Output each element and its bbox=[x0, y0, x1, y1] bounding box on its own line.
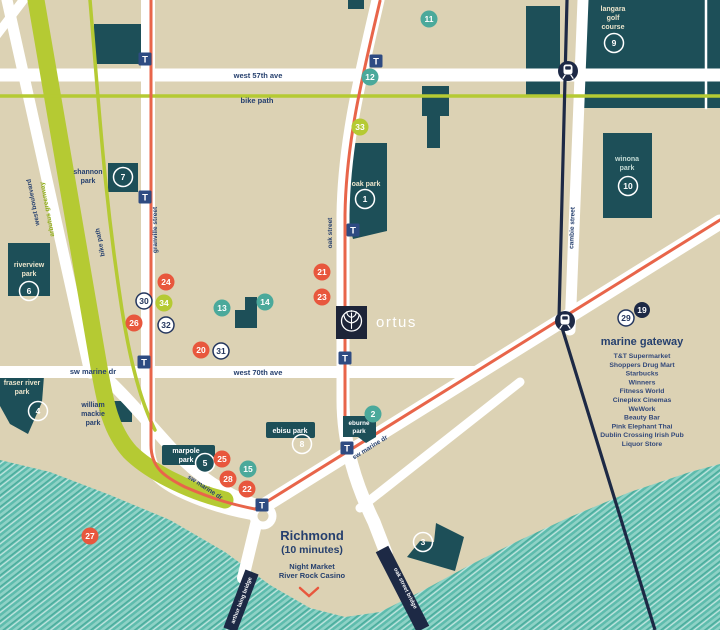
svg-text:33: 33 bbox=[355, 122, 365, 132]
map-marker-34[interactable]: 34 bbox=[156, 295, 173, 312]
label-granville: granville street bbox=[152, 206, 159, 253]
svg-text:12: 12 bbox=[365, 72, 375, 82]
svg-text:11: 11 bbox=[425, 14, 434, 24]
map-marker-24[interactable]: 24 bbox=[158, 274, 175, 291]
map-marker-25[interactable]: 25 bbox=[214, 451, 231, 468]
map-marker-30[interactable]: 30 bbox=[136, 293, 152, 309]
marine-gateway-item: Cineplex Cinemas bbox=[613, 397, 672, 404]
map-marker-26[interactable]: 26 bbox=[126, 315, 143, 332]
marine-gateway-item: Liquor Store bbox=[622, 441, 663, 448]
map-marker-5[interactable]: 5 bbox=[196, 454, 215, 473]
t-station-icon[interactable]: T bbox=[139, 191, 152, 204]
svg-text:10: 10 bbox=[623, 181, 633, 191]
svg-text:8: 8 bbox=[300, 439, 305, 449]
marine-gateway-item: Beauty Bar bbox=[624, 415, 660, 422]
marine-gateway-item: Pink Elephant Thai bbox=[612, 423, 673, 430]
label-west-57th: west 57th ave bbox=[233, 71, 283, 80]
svg-text:28: 28 bbox=[223, 474, 233, 484]
map-marker-14[interactable]: 14 bbox=[257, 294, 274, 311]
label-oak-street: oak street bbox=[327, 217, 334, 249]
richmond-line1: Night Market bbox=[289, 562, 335, 571]
map-marker-21[interactable]: 21 bbox=[314, 264, 331, 281]
label-bike-path: bike path bbox=[241, 96, 274, 105]
svg-text:19: 19 bbox=[637, 305, 647, 315]
train-station-icon[interactable] bbox=[555, 311, 575, 331]
richmond-line2: River Rock Casino bbox=[279, 571, 346, 580]
svg-text:T: T bbox=[259, 500, 265, 511]
map-marker-12[interactable]: 12 bbox=[362, 69, 379, 86]
t-station-icon[interactable]: T bbox=[347, 224, 360, 237]
svg-text:T: T bbox=[373, 56, 379, 67]
label-west-70th: west 70th ave bbox=[233, 368, 283, 377]
svg-text:2: 2 bbox=[371, 409, 376, 419]
richmond-title: Richmond bbox=[280, 528, 344, 543]
map-canvas: arthur laing bridge oak street bridge we… bbox=[0, 0, 720, 630]
svg-text:T: T bbox=[344, 443, 350, 454]
svg-text:13: 13 bbox=[217, 303, 227, 313]
svg-text:26: 26 bbox=[129, 318, 139, 328]
roundabout-island bbox=[258, 511, 269, 522]
marine-gateway-item: Winners bbox=[629, 379, 656, 386]
map-marker-32[interactable]: 32 bbox=[158, 317, 174, 333]
langara-golf-course-area bbox=[579, 0, 720, 108]
svg-text:1: 1 bbox=[363, 194, 368, 204]
building-block-oak-top bbox=[348, 0, 364, 9]
svg-text:27: 27 bbox=[85, 531, 95, 541]
svg-text:14: 14 bbox=[260, 297, 270, 307]
ortus-logo-text: ortus bbox=[376, 314, 417, 331]
map-marker-13[interactable]: 13 bbox=[214, 300, 231, 317]
svg-text:7: 7 bbox=[121, 172, 126, 182]
svg-text:5: 5 bbox=[203, 458, 208, 468]
svg-text:32: 32 bbox=[161, 320, 171, 330]
marine-gateway-title: marine gateway bbox=[601, 336, 684, 348]
map-marker-28[interactable]: 28 bbox=[220, 471, 237, 488]
svg-text:6: 6 bbox=[27, 286, 32, 296]
map-marker-29[interactable]: 29 bbox=[618, 310, 634, 326]
svg-text:T: T bbox=[142, 54, 148, 65]
neighbourhood-map: arthur laing bridge oak street bridge we… bbox=[0, 0, 720, 630]
svg-text:T: T bbox=[141, 357, 147, 368]
label-sw-marine-west: sw marine dr bbox=[70, 367, 116, 376]
svg-text:T: T bbox=[350, 225, 356, 236]
svg-text:15: 15 bbox=[243, 464, 253, 474]
map-marker-11[interactable]: 11 bbox=[421, 11, 438, 28]
map-marker-33[interactable]: 33 bbox=[352, 119, 369, 136]
t-station-icon[interactable]: T bbox=[339, 352, 352, 365]
richmond-subtitle: (10 minutes) bbox=[281, 544, 343, 556]
map-marker-23[interactable]: 23 bbox=[314, 289, 331, 306]
svg-text:20: 20 bbox=[196, 345, 206, 355]
svg-text:24: 24 bbox=[161, 277, 171, 287]
svg-text:21: 21 bbox=[317, 267, 327, 277]
svg-text:3: 3 bbox=[421, 537, 426, 547]
t-station-icon[interactable]: T bbox=[370, 55, 383, 68]
t-station-icon[interactable]: T bbox=[256, 499, 269, 512]
t-station-icon[interactable]: T bbox=[138, 356, 151, 369]
map-marker-31[interactable]: 31 bbox=[213, 343, 229, 359]
winona-park-area bbox=[603, 133, 652, 218]
marine-gateway-item: Starbucks bbox=[626, 371, 659, 378]
map-marker-2[interactable]: 2 bbox=[365, 406, 382, 423]
svg-text:4: 4 bbox=[36, 406, 41, 416]
svg-text:31: 31 bbox=[216, 346, 226, 356]
svg-text:34: 34 bbox=[159, 298, 169, 308]
svg-text:9: 9 bbox=[612, 38, 617, 48]
train-station-icon[interactable] bbox=[558, 61, 578, 81]
svg-text:29: 29 bbox=[621, 313, 631, 323]
marine-gateway-items: T&T SupermarketShoppers Drug MartStarbuc… bbox=[600, 353, 683, 448]
map-marker-20[interactable]: 20 bbox=[193, 342, 210, 359]
svg-text:T: T bbox=[142, 192, 148, 203]
map-marker-22[interactable]: 22 bbox=[239, 481, 256, 498]
svg-text:30: 30 bbox=[139, 296, 149, 306]
marine-gateway-item: T&T Supermarket bbox=[614, 353, 671, 360]
svg-text:T: T bbox=[342, 353, 348, 364]
building-block-cambie bbox=[526, 6, 560, 95]
marine-gateway-item: Shoppers Drug Mart bbox=[609, 362, 675, 369]
svg-text:22: 22 bbox=[242, 484, 252, 494]
map-marker-15[interactable]: 15 bbox=[240, 461, 257, 478]
t-station-icon[interactable]: T bbox=[341, 442, 354, 455]
label-cambie: cambie street bbox=[568, 206, 576, 249]
svg-text:23: 23 bbox=[317, 292, 327, 302]
map-marker-27[interactable]: 27 bbox=[82, 528, 99, 545]
marine-gateway-item: Fitness World bbox=[620, 388, 665, 395]
map-marker-19[interactable]: 19 bbox=[634, 302, 650, 318]
t-station-icon[interactable]: T bbox=[139, 53, 152, 66]
marine-gateway-item: Dublin Crossing Irish Pub bbox=[600, 432, 683, 439]
marine-gateway-item: WeWork bbox=[629, 406, 656, 413]
label-oak-park: oak park bbox=[352, 181, 381, 188]
svg-text:25: 25 bbox=[217, 454, 227, 464]
